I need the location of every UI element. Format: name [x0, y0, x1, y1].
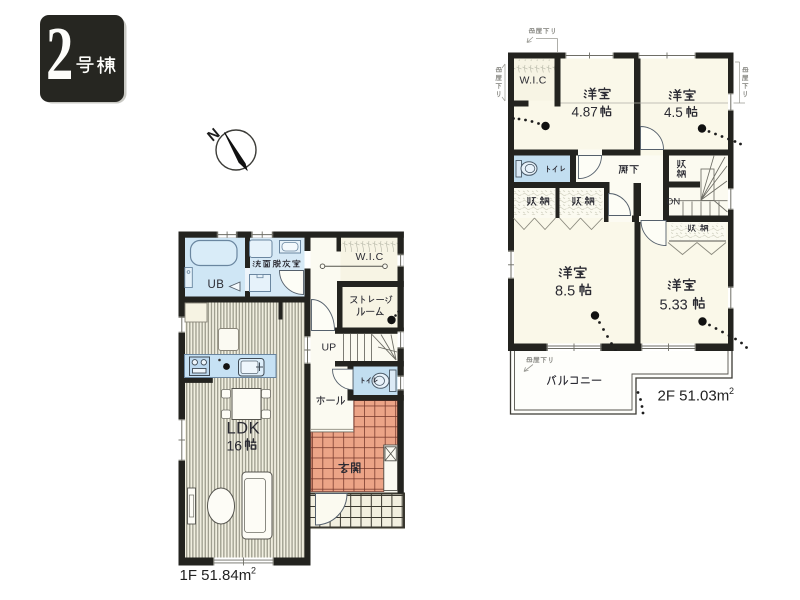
svg-text:W.I.C: W.I.C [356, 251, 384, 263]
svg-text:LDK: LDK [227, 420, 261, 438]
svg-text:1F 51.84m: 1F 51.84m [180, 567, 252, 584]
svg-text:4.5: 4.5 [664, 105, 683, 120]
svg-text:2: 2 [251, 566, 256, 576]
svg-text:UB: UB [208, 279, 225, 291]
svg-text:8.5: 8.5 [555, 284, 575, 300]
svg-text:4.87: 4.87 [572, 105, 598, 120]
svg-text:W.I.C: W.I.C [520, 75, 547, 87]
svg-text:DN: DN [667, 197, 681, 208]
svg-text:5.33: 5.33 [660, 298, 688, 314]
svg-text:2: 2 [46, 12, 73, 96]
svg-text:UP: UP [322, 342, 337, 354]
svg-text:2: 2 [729, 386, 734, 396]
svg-text:16: 16 [227, 438, 243, 454]
svg-text:2F 51.03m: 2F 51.03m [658, 388, 730, 405]
